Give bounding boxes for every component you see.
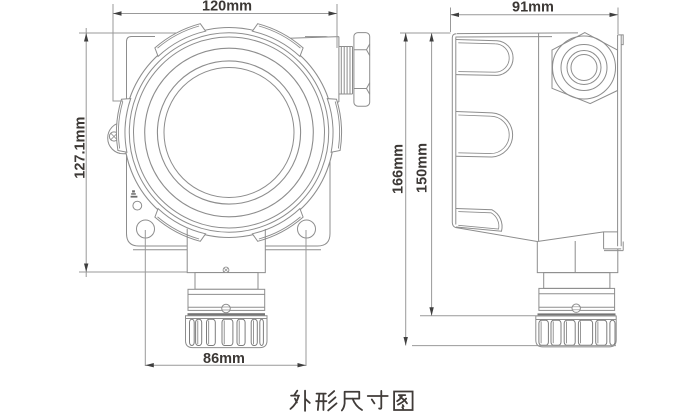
svg-text:166mm: 166mm (391, 144, 407, 194)
svg-text:86mm: 86mm (203, 351, 245, 367)
svg-text:91mm: 91mm (512, 0, 554, 16)
svg-text:120mm: 120mm (202, 0, 252, 15)
svg-text:150mm: 150mm (415, 143, 431, 193)
svg-text:127.1mm: 127.1mm (73, 117, 89, 179)
